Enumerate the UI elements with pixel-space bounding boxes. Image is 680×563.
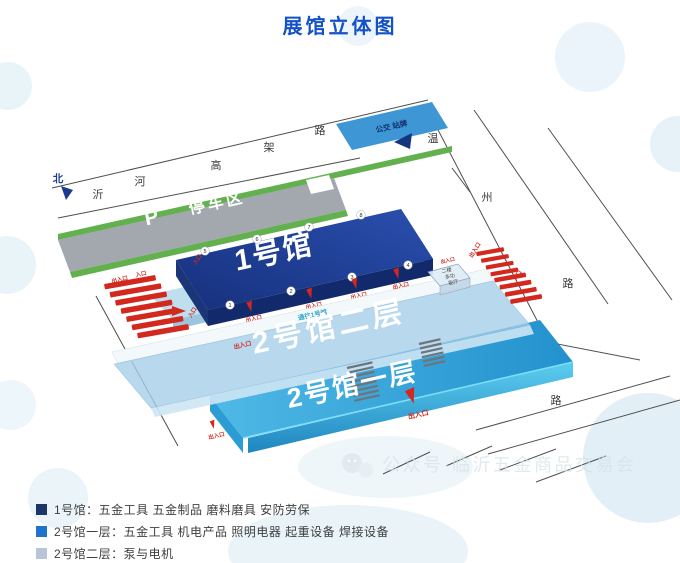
wechat-icon (359, 463, 374, 478)
canopy-stripe (481, 254, 509, 263)
road-char: 沂 (93, 188, 104, 201)
road-char: 州 (482, 192, 493, 204)
road-char: 架 (264, 141, 275, 154)
road-char: 温 (428, 132, 439, 145)
legend-swatch (36, 526, 47, 537)
road-char: 路 (551, 394, 562, 407)
wechat-icon-eye (348, 460, 351, 463)
road-line (548, 128, 672, 300)
legend-row-hall2f1: 2号馆一层：五金工具 机电产品 照明电器 起重设备 焊接设备 (36, 520, 389, 542)
road-line (452, 168, 470, 192)
gate-number: 2 (289, 289, 292, 295)
road-char: 路 (563, 277, 574, 290)
north-indicator: 北 (53, 172, 73, 200)
wechat-icon-eye (354, 460, 357, 463)
venue-map: 沂 河 高 架 路 温 州 路 路 北 P 停车区 公交 站牌 (0, 0, 680, 495)
legend-swatch (36, 548, 47, 559)
gate-number: 8 (359, 213, 362, 219)
watermark: 公众号·临沂五金商品交易会 (342, 453, 637, 478)
arrow-down-icon (209, 420, 216, 430)
road-line (488, 400, 680, 454)
legend-swatch-hall1 (36, 504, 47, 515)
gate-number: 7 (307, 225, 310, 231)
north-label: 北 (53, 172, 64, 185)
gate-number: 1 (228, 303, 231, 309)
legend-swatch-hall2f2 (36, 548, 47, 559)
watermark-text: 公众号·临沂五金商品交易会 (382, 455, 637, 475)
page-title: 展馆立体图 (0, 10, 680, 39)
gate-number: 5 (203, 249, 206, 255)
legend-row-hall2f2: 2号馆二层：泵与电机 (36, 542, 389, 563)
canopy-stripe (510, 294, 542, 304)
legend-swatch-hall2f1 (36, 526, 47, 537)
gate-number: 4 (406, 263, 409, 269)
north-arrow-icon (61, 186, 73, 200)
legend: 1号馆：五金工具 五金制品 磨料磨具 安防劳保 2号馆一层：五金工具 机电产品 … (36, 498, 389, 563)
legend-label-hall1: 1号馆：五金工具 五金制品 磨料磨具 安防劳保 (54, 501, 310, 518)
road-char: 高 (211, 158, 222, 172)
entrance-exit-label: 出入口 (467, 241, 483, 259)
gate-number: 6 (255, 237, 258, 243)
road-char: 路 (315, 124, 326, 137)
legend-label-hall2f2: 2号馆二层：泵与电机 (54, 545, 174, 562)
entrance-exit-label: 出入口 (207, 430, 225, 441)
legend-row-hall1: 1号馆：五金工具 五金制品 磨料磨具 安防劳保 (36, 498, 389, 520)
road-char: 河 (135, 175, 146, 188)
legend-swatch (36, 504, 47, 515)
page: 展馆立体图 (0, 0, 680, 563)
legend-label-hall2f1: 2号馆一层：五金工具 机电产品 照明电器 起重设备 焊接设备 (54, 523, 389, 540)
entrance-exit-label: 出入口 (440, 256, 456, 266)
